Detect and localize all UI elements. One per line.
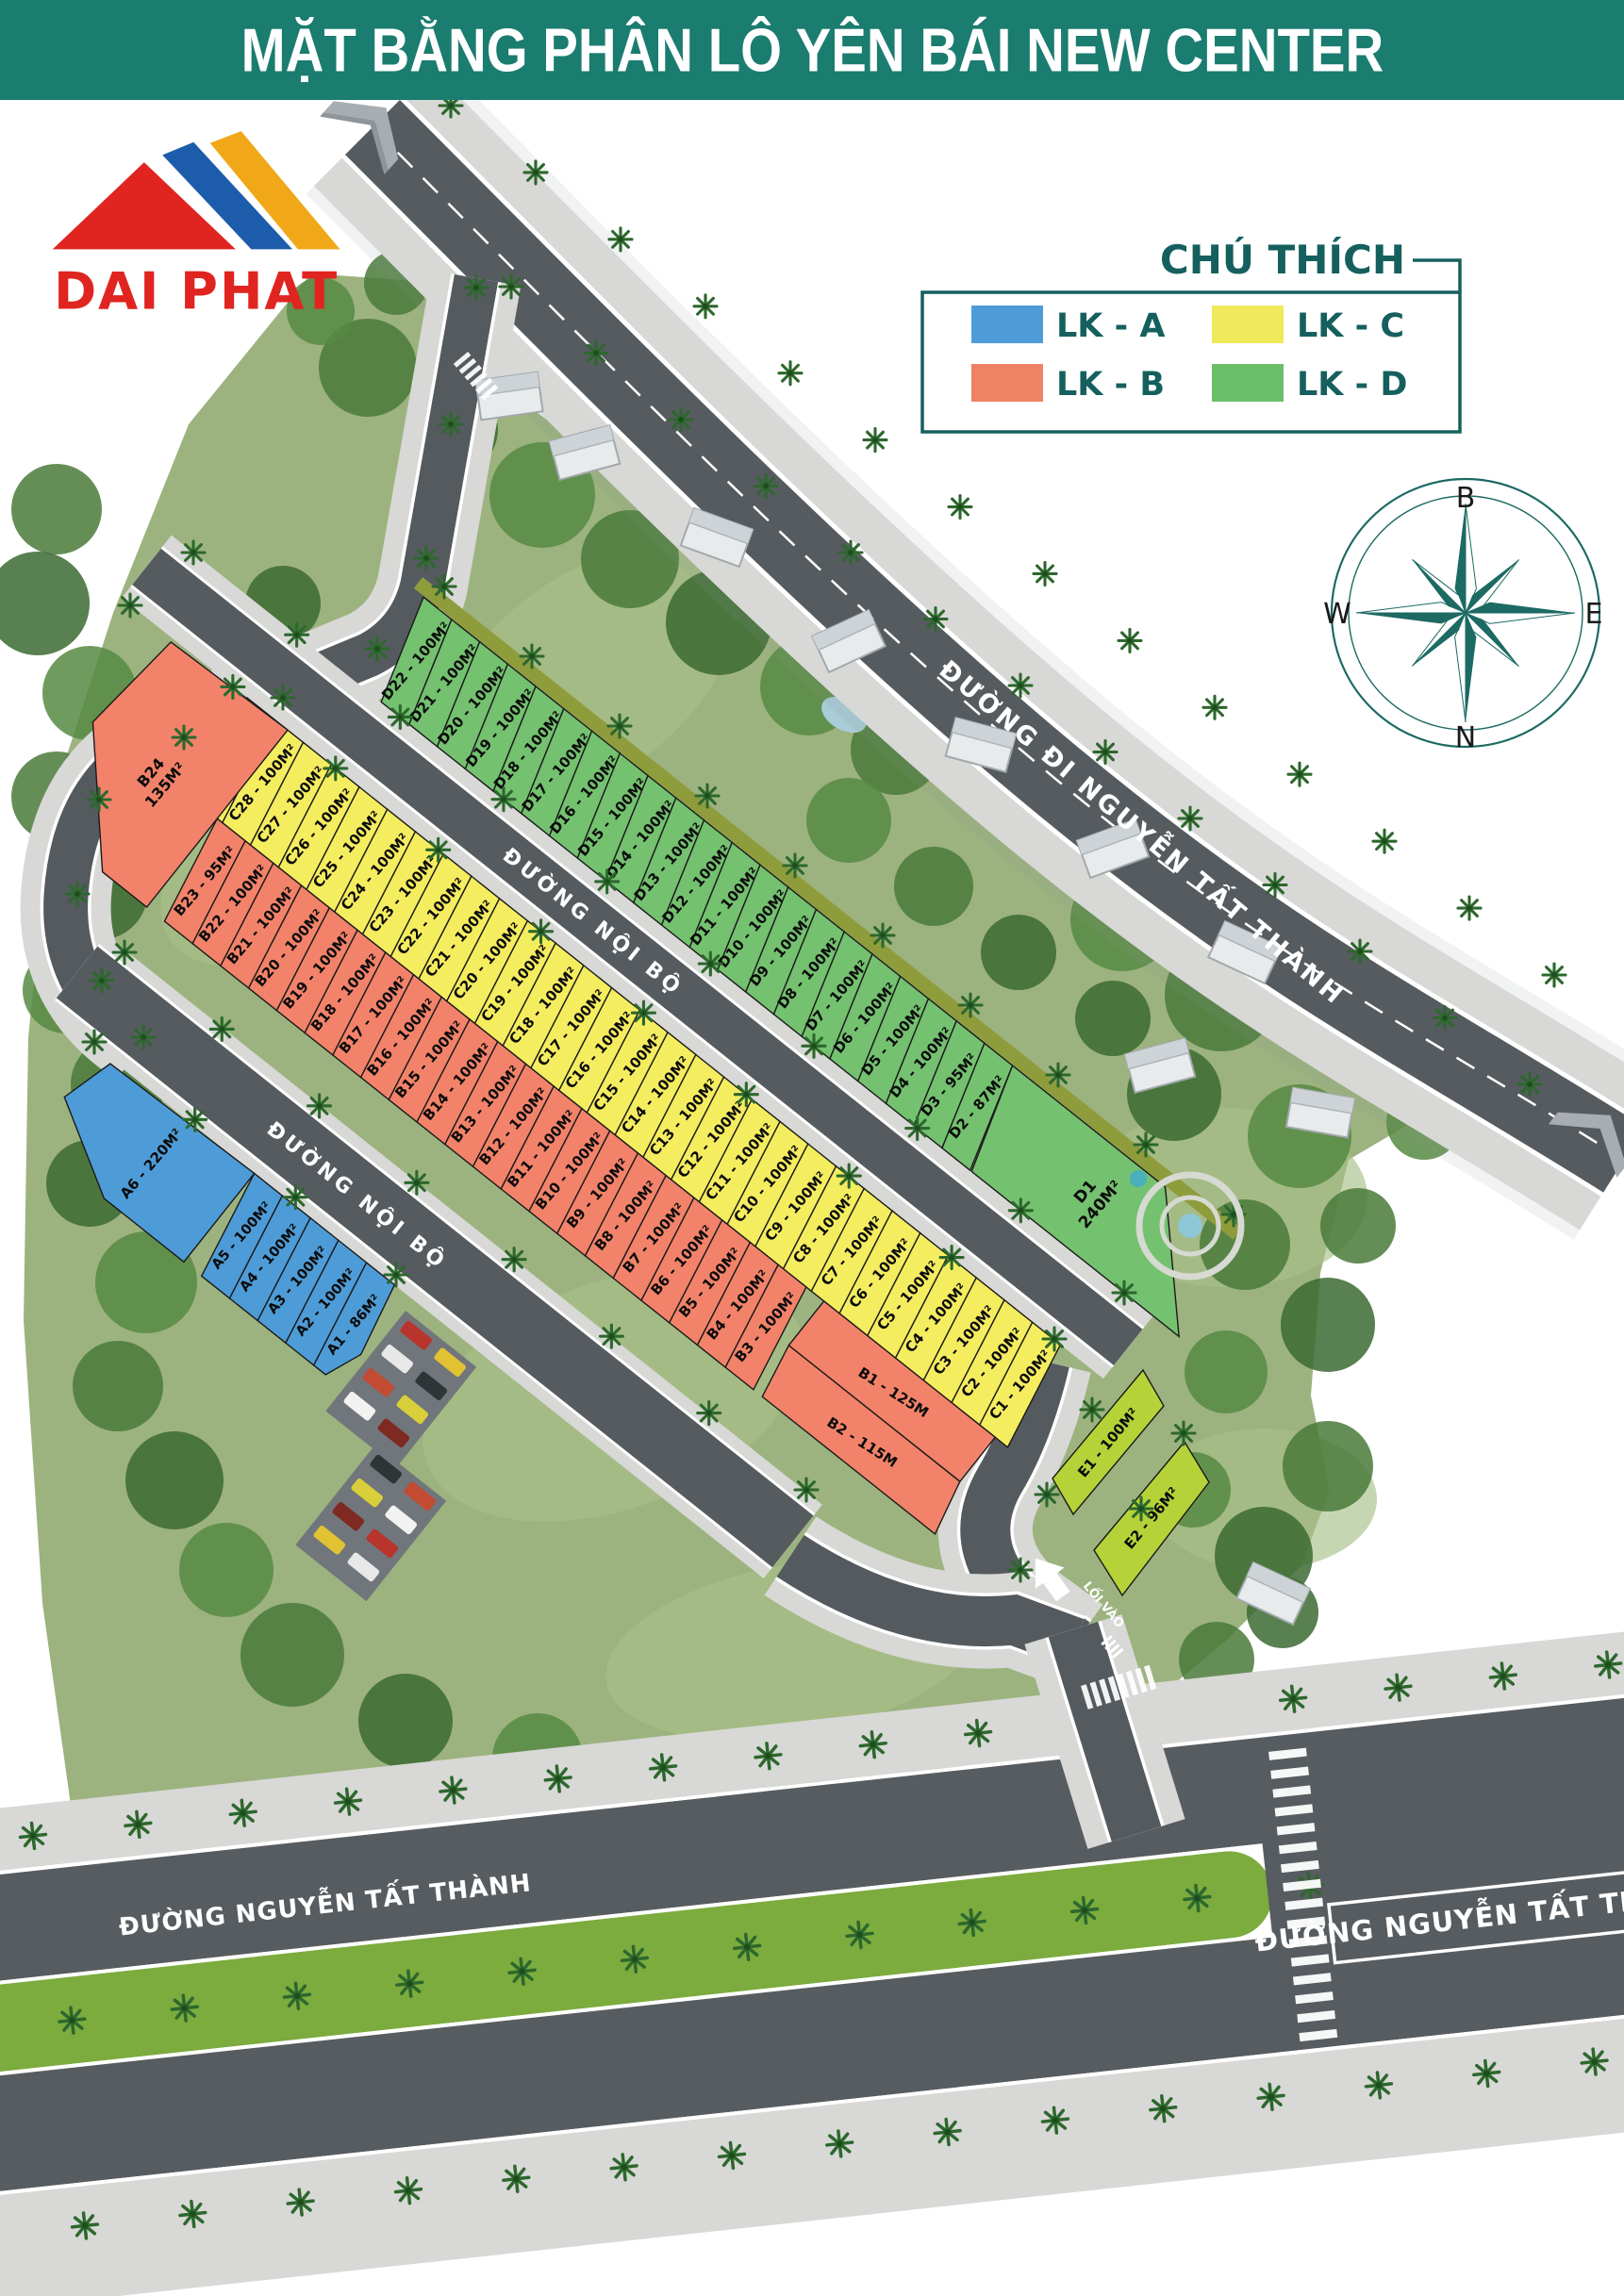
forest-blob — [125, 1431, 224, 1529]
palm-tree-icon — [210, 1017, 233, 1040]
palm-tree-icon — [284, 1186, 307, 1209]
palm-tree-icon — [803, 1034, 825, 1057]
palm-tree-icon — [439, 413, 462, 436]
forest-blob — [981, 915, 1056, 990]
park-pool — [1130, 1170, 1147, 1187]
palm-tree-icon — [1009, 674, 1032, 697]
forest-blob — [73, 1341, 163, 1431]
palm-tree-icon — [1203, 696, 1226, 719]
palm-tree-icon — [1373, 830, 1396, 852]
palm-tree-icon — [949, 496, 971, 519]
forest-blob — [11, 464, 102, 554]
palm-tree-icon — [924, 608, 947, 631]
legend-swatch-lk-c — [1212, 306, 1284, 343]
palm-tree-icon — [66, 883, 89, 905]
compass-bottom: N — [1455, 721, 1476, 754]
legend-swatch-lk-d — [1212, 364, 1284, 402]
palm-tree-icon — [286, 623, 308, 646]
palm-tree-icon — [427, 838, 450, 861]
palm-tree-icon — [839, 541, 862, 564]
palm-tree-icon — [1433, 1007, 1456, 1030]
palm-tree-icon — [119, 594, 141, 617]
palm-tree-icon — [1034, 562, 1056, 585]
palm-tree-icon — [184, 1108, 207, 1131]
palm-tree-icon — [784, 854, 806, 877]
palm-tree-icon — [940, 1247, 963, 1269]
palm-tree-icon — [389, 705, 411, 728]
compass-top: B — [1456, 482, 1476, 515]
palm-tree-icon — [182, 541, 205, 564]
palm-tree-icon — [585, 342, 607, 365]
palm-tree-icon — [1036, 1483, 1058, 1506]
palm-tree-icon — [1009, 1199, 1032, 1222]
palm-tree-icon — [1043, 1328, 1066, 1350]
palm-tree-icon — [308, 1095, 331, 1117]
palm-tree-icon — [1113, 1281, 1135, 1304]
entrance-road — [1073, 1629, 1136, 1834]
forest-blob — [240, 1603, 344, 1707]
site-plan-poster: MẶT BẰNG PHÂN LÔ YÊN BÁI NEW CENTER DAI … — [0, 0, 1624, 2296]
legend-item-lk-c: LK - C — [1212, 306, 1404, 345]
palm-tree-icon — [433, 575, 456, 598]
palm-tree-icon — [864, 429, 887, 452]
legend-label-lk-a: LK - A — [1056, 307, 1165, 345]
compass-right: E — [1585, 598, 1603, 631]
site-map: D22 - 100M²D21 - 100M²D20 - 100M²D19 - 1… — [0, 0, 1624, 2296]
palm-tree-icon — [500, 275, 522, 298]
palm-tree-icon — [608, 715, 631, 737]
forest-blob — [1281, 1278, 1375, 1372]
park-fountain — [1178, 1214, 1202, 1238]
palm-tree-icon — [1179, 807, 1201, 830]
legend-label-lk-b: LK - B — [1056, 366, 1165, 404]
legend-swatch-lk-b — [971, 364, 1043, 402]
palm-tree-icon — [91, 969, 113, 992]
palm-tree-icon — [465, 276, 488, 299]
palm-tree-icon — [694, 295, 717, 318]
palm-tree-icon — [698, 1402, 721, 1425]
forest-blob — [358, 1674, 453, 1768]
palm-tree-icon — [1458, 897, 1481, 919]
palm-tree-icon — [1094, 741, 1117, 764]
palm-tree-icon — [596, 870, 619, 893]
dai-phat-logo: DAI PHAT — [45, 121, 356, 338]
forest-blob — [1320, 1188, 1396, 1264]
forest-blob — [1283, 1421, 1373, 1511]
palm-tree-icon — [1130, 1497, 1152, 1520]
palm-tree-icon — [83, 1031, 106, 1053]
palm-tree-icon — [132, 1026, 155, 1049]
palm-tree-icon — [696, 785, 719, 807]
palm-tree-icon — [113, 941, 136, 964]
palm-tree-icon — [735, 1083, 757, 1106]
legend: CHÚ THÍCH LK - A LK - B LK - C LK - D — [922, 236, 1460, 432]
palm-tree-icon — [754, 475, 777, 498]
palm-tree-icon — [1172, 1422, 1195, 1445]
palm-tree-icon — [837, 1165, 860, 1187]
legend-swatch-lk-a — [971, 306, 1043, 343]
forest-blob — [806, 778, 891, 863]
legend-connector — [1413, 260, 1460, 292]
legend-item-lk-d: LK - D — [1212, 364, 1407, 404]
compass-star — [1356, 504, 1575, 722]
palm-tree-icon — [1119, 629, 1141, 652]
palm-tree-icon — [609, 228, 632, 251]
palm-tree-icon — [324, 757, 347, 780]
palm-tree-icon — [530, 920, 553, 943]
logo-text: DAI PHAT — [54, 261, 339, 321]
palm-tree-icon — [503, 1248, 525, 1271]
palm-tree-icon — [406, 1171, 428, 1194]
palm-tree-icon — [415, 547, 438, 570]
palm-tree-icon — [1081, 1398, 1103, 1421]
palm-tree-icon — [795, 1478, 818, 1501]
legend-label-lk-d: LK - D — [1297, 366, 1407, 404]
palm-tree-icon — [1135, 1133, 1157, 1156]
compass-rose: B E N W — [1323, 479, 1602, 754]
forest-blob — [1075, 981, 1151, 1056]
forest-blob — [1185, 1330, 1268, 1413]
forest-blob — [894, 847, 973, 926]
palm-tree-icon — [492, 788, 515, 811]
palm-tree-icon — [906, 1117, 929, 1140]
legend-item-lk-b: LK - B — [971, 364, 1165, 404]
palm-tree-icon — [222, 675, 244, 698]
palm-tree-icon — [670, 408, 692, 431]
header-bar: MẶT BẰNG PHÂN LÔ YÊN BÁI NEW CENTER — [0, 0, 1624, 100]
palm-tree-icon — [272, 686, 294, 709]
palm-tree-icon — [959, 994, 982, 1016]
palm-tree-icon — [871, 924, 894, 947]
palm-tree-icon — [1349, 940, 1371, 963]
palm-tree-icon — [779, 362, 802, 385]
palm-tree-icon — [88, 788, 110, 811]
palm-tree-icon — [385, 1264, 407, 1286]
page-title: MẶT BẰNG PHÂN LÔ YÊN BÁI NEW CENTER — [240, 15, 1384, 86]
palm-tree-icon — [1264, 874, 1286, 897]
palm-tree-icon — [600, 1325, 622, 1347]
compass-left: W — [1323, 598, 1351, 631]
palm-tree-icon — [521, 645, 543, 668]
palm-tree-icon — [1288, 763, 1311, 785]
legend-title: CHÚ THÍCH — [1160, 236, 1405, 283]
forest-blob — [179, 1523, 273, 1617]
palm-tree-icon — [1518, 1073, 1541, 1096]
forest-blob — [0, 552, 90, 655]
palm-tree-icon — [173, 726, 195, 749]
palm-tree-icon — [1009, 1559, 1032, 1581]
palm-tree-icon — [1543, 964, 1566, 986]
legend-item-lk-a: LK - A — [971, 306, 1165, 345]
legend-label-lk-c: LK - C — [1297, 307, 1404, 345]
palm-tree-icon — [1047, 1064, 1069, 1086]
palm-tree-icon — [366, 637, 389, 660]
palm-tree-icon — [524, 161, 547, 184]
palm-tree-icon — [632, 1001, 655, 1024]
palm-tree-icon — [699, 952, 721, 975]
